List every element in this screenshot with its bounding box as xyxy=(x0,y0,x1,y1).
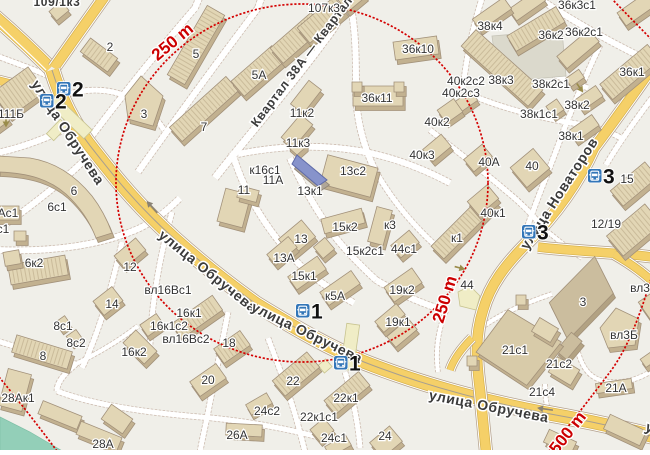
svg-text:14: 14 xyxy=(105,297,119,311)
svg-text:44: 44 xyxy=(460,278,474,292)
svg-text:3: 3 xyxy=(580,295,587,309)
svg-text:2: 2 xyxy=(72,79,84,102)
svg-text:36к11: 36к11 xyxy=(361,91,392,105)
svg-text:15: 15 xyxy=(620,172,634,186)
svg-text:вл16Вc1: вл16Вc1 xyxy=(144,283,191,297)
svg-text:1: 1 xyxy=(349,353,361,376)
svg-text:вл16Вc2: вл16Вc2 xyxy=(162,332,209,346)
svg-text:8: 8 xyxy=(40,349,47,363)
svg-text:28A: 28A xyxy=(92,437,113,450)
svg-text:40: 40 xyxy=(525,159,539,173)
svg-text:13A: 13A xyxy=(273,251,294,265)
svg-text:44c1: 44c1 xyxy=(391,242,417,256)
svg-text:к5A: к5A xyxy=(325,289,345,303)
svg-text:6c1: 6c1 xyxy=(47,200,67,214)
svg-text:38к1c1: 38к1c1 xyxy=(520,107,558,121)
svg-text:11: 11 xyxy=(238,183,251,197)
svg-text:11к2: 11к2 xyxy=(290,106,315,120)
svg-text:24c2: 24c2 xyxy=(254,404,280,418)
svg-text:15к1: 15к1 xyxy=(291,269,317,283)
svg-text:к3: к3 xyxy=(384,218,396,232)
svg-text:к1: к1 xyxy=(451,231,463,245)
svg-text:21c4: 21c4 xyxy=(529,385,555,399)
svg-text:38к1: 38к1 xyxy=(558,129,584,143)
svg-text:40к2: 40к2 xyxy=(424,115,450,129)
svg-text:36к3c1: 36к3c1 xyxy=(558,0,596,12)
svg-text:36к2: 36к2 xyxy=(538,28,564,42)
svg-text:8c2: 8c2 xyxy=(66,336,86,350)
svg-text:40A: 40A xyxy=(478,155,499,169)
svg-text:Ac1: Ac1 xyxy=(0,206,19,220)
svg-text:38к4: 38к4 xyxy=(477,19,503,33)
svg-text:19к1: 19к1 xyxy=(385,315,411,329)
svg-text:22к1: 22к1 xyxy=(333,391,359,405)
svg-text:11к3: 11к3 xyxy=(286,136,311,150)
svg-text:40к2c3: 40к2c3 xyxy=(442,86,480,100)
svg-text:12: 12 xyxy=(123,260,137,274)
svg-text:3: 3 xyxy=(141,107,148,121)
svg-text:12/19: 12/19 xyxy=(591,217,621,231)
svg-text:18: 18 xyxy=(222,336,236,350)
svg-text:38к2c1: 38к2c1 xyxy=(532,77,570,91)
svg-text:40к3: 40к3 xyxy=(409,148,435,162)
svg-text:5A: 5A xyxy=(252,68,267,82)
svg-text:28Ак1: 28Ак1 xyxy=(1,391,35,405)
svg-text:40к1: 40к1 xyxy=(480,206,506,220)
svg-text:1: 1 xyxy=(311,301,323,324)
svg-text:6к2: 6к2 xyxy=(25,256,44,270)
svg-text:24: 24 xyxy=(378,429,392,443)
svg-text:16к1: 16к1 xyxy=(176,306,202,320)
svg-text:38к3: 38к3 xyxy=(488,73,514,87)
svg-text:21c2: 21c2 xyxy=(546,357,572,371)
svg-text:107к3: 107к3 xyxy=(308,1,340,15)
svg-text:36к1: 36к1 xyxy=(619,65,645,79)
svg-text:15к2: 15к2 xyxy=(332,220,358,234)
svg-text:16к2: 16к2 xyxy=(121,345,147,359)
svg-text:вл3: вл3 xyxy=(630,281,650,295)
svg-text:109/1к3: 109/1к3 xyxy=(34,0,81,9)
svg-text:15к2c1: 15к2c1 xyxy=(346,244,384,258)
svg-text:7: 7 xyxy=(201,120,208,134)
svg-text:19к2: 19к2 xyxy=(389,283,415,297)
svg-text:вл3Б: вл3Б xyxy=(610,328,638,342)
svg-text:2: 2 xyxy=(107,40,114,54)
svg-text:20: 20 xyxy=(201,373,215,387)
svg-text:36к2c1: 36к2c1 xyxy=(565,25,603,39)
svg-text:22к1c1: 22к1c1 xyxy=(300,410,338,424)
svg-text:21A: 21A xyxy=(605,381,626,395)
svg-text:22: 22 xyxy=(286,374,300,388)
svg-text:8c1: 8c1 xyxy=(53,319,73,333)
svg-text:13к1: 13к1 xyxy=(297,184,323,198)
svg-text:21c1: 21c1 xyxy=(502,343,528,357)
svg-text:5: 5 xyxy=(193,47,200,61)
svg-text:6: 6 xyxy=(71,184,78,198)
svg-text:11A: 11A xyxy=(263,173,283,187)
svg-text:2: 2 xyxy=(55,91,67,114)
svg-text:24c1: 24c1 xyxy=(321,431,347,445)
svg-text:3: 3 xyxy=(537,222,549,245)
svg-text:38к2: 38к2 xyxy=(564,98,590,112)
svg-text:36к10: 36к10 xyxy=(402,42,434,56)
svg-text:c1: c1 xyxy=(0,222,10,236)
svg-text:13c2: 13c2 xyxy=(340,164,366,178)
svg-text:3: 3 xyxy=(603,166,615,189)
svg-text:16к1c2: 16к1c2 xyxy=(150,319,188,333)
svg-text:26A: 26A xyxy=(226,428,247,442)
svg-text:13: 13 xyxy=(294,232,308,246)
svg-text:111Б: 111Б xyxy=(0,107,24,121)
